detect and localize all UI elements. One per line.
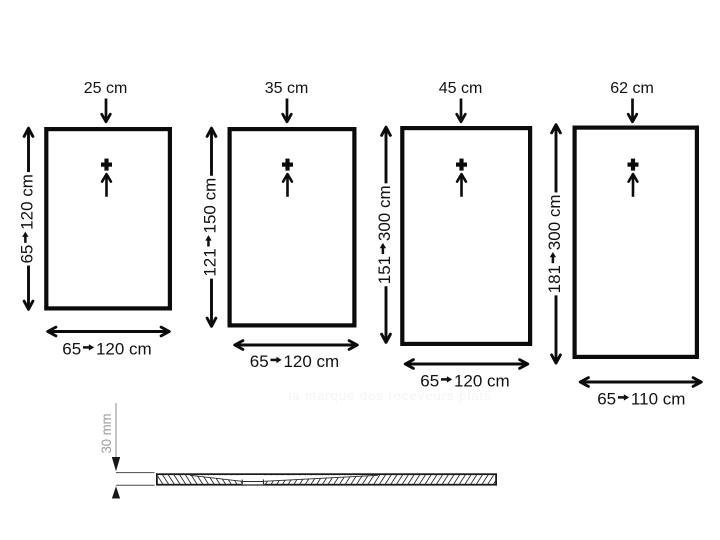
svg-text:181: 181	[545, 265, 564, 293]
svg-text:65: 65	[62, 340, 81, 359]
svg-text:35 cm: 35 cm	[265, 80, 309, 97]
svg-text:30 mm: 30 mm	[98, 414, 114, 454]
svg-text:65: 65	[250, 352, 269, 371]
svg-text:151: 151	[375, 256, 394, 284]
svg-text:120 cm: 120 cm	[18, 174, 37, 230]
svg-text:300 cm: 300 cm	[375, 185, 394, 241]
svg-text:45 cm: 45 cm	[439, 80, 483, 97]
svg-text:150 cm: 150 cm	[201, 178, 220, 234]
svg-text:120 cm: 120 cm	[96, 340, 152, 359]
svg-text:65: 65	[597, 390, 616, 409]
svg-text:120 cm: 120 cm	[283, 352, 339, 371]
svg-text:62 cm: 62 cm	[610, 80, 654, 97]
svg-text:300 cm: 300 cm	[545, 194, 564, 250]
svg-text:25 cm: 25 cm	[84, 80, 128, 97]
svg-text:la marque des receveurs pl: la marque des receveurs plats	[288, 388, 491, 403]
svg-text:65: 65	[18, 245, 37, 264]
svg-text:121: 121	[201, 248, 220, 276]
svg-text:110 cm: 110 cm	[631, 390, 686, 409]
